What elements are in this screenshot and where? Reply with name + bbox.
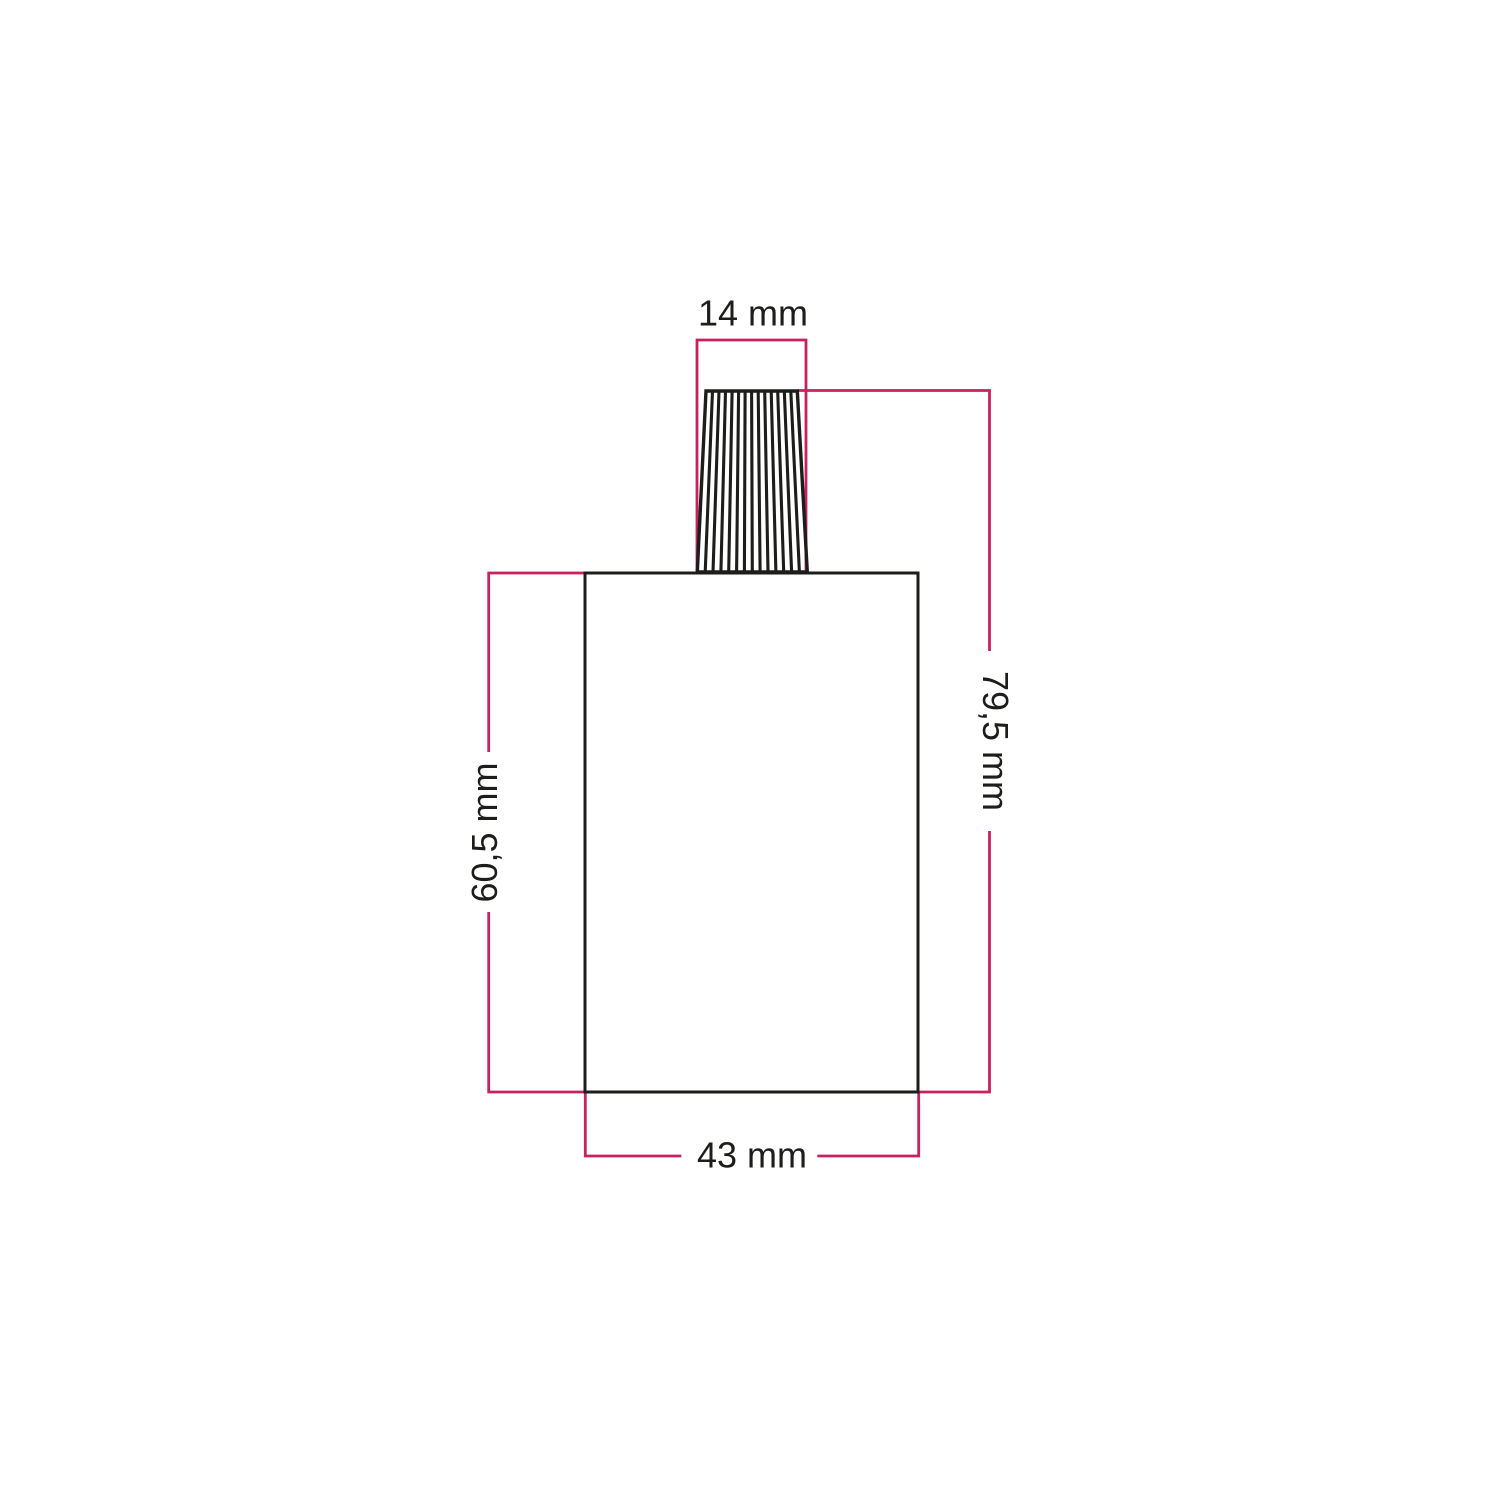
svg-text:60,5 mm: 60,5 mm <box>464 762 505 902</box>
svg-text:79,5 mm: 79,5 mm <box>975 671 1016 811</box>
svg-text:14 mm: 14 mm <box>698 293 808 334</box>
svg-text:43 mm: 43 mm <box>697 1135 807 1176</box>
